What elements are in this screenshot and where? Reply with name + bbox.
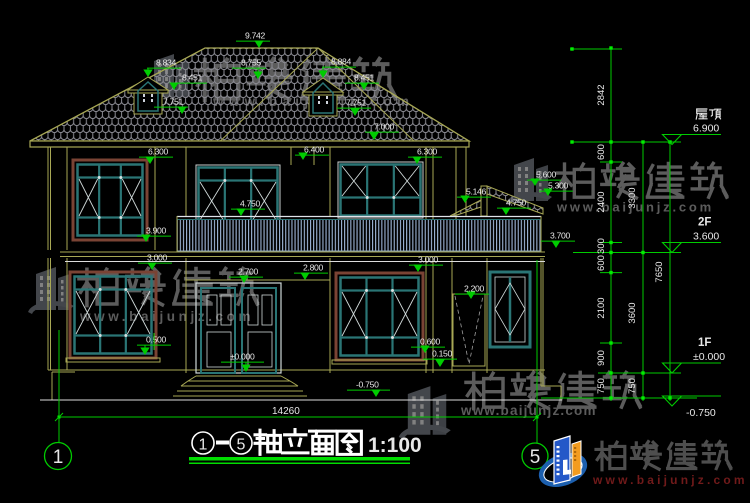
svg-text:www.baijunjz.com: www.baijunjz.com bbox=[592, 473, 748, 487]
svg-text:1F: 1F bbox=[698, 337, 711, 349]
svg-text:7650: 7650 bbox=[654, 261, 665, 282]
svg-text:5.600: 5.600 bbox=[536, 170, 557, 180]
svg-text:7.000: 7.000 bbox=[374, 122, 395, 132]
svg-text:0.150: 0.150 bbox=[432, 349, 453, 359]
svg-text:8.884: 8.884 bbox=[331, 57, 352, 67]
svg-text:7.751: 7.751 bbox=[346, 98, 367, 108]
svg-text:750: 750 bbox=[596, 378, 607, 394]
svg-text:3.000: 3.000 bbox=[418, 255, 439, 265]
svg-text:2.800: 2.800 bbox=[303, 263, 324, 273]
svg-text:5: 5 bbox=[530, 447, 541, 468]
svg-text:2842: 2842 bbox=[596, 84, 607, 105]
svg-text:0.600: 0.600 bbox=[420, 337, 441, 347]
svg-text:8.451: 8.451 bbox=[354, 73, 375, 83]
svg-text:7.751: 7.751 bbox=[163, 97, 184, 107]
svg-text:5: 5 bbox=[237, 437, 246, 454]
svg-text:±0.000: ±0.000 bbox=[693, 351, 725, 363]
svg-text:±0.000: ±0.000 bbox=[230, 352, 255, 362]
svg-text:4.750: 4.750 bbox=[506, 198, 527, 208]
svg-text:6.300: 6.300 bbox=[148, 147, 169, 157]
svg-text:0.500: 0.500 bbox=[146, 335, 167, 345]
svg-text:-0.750: -0.750 bbox=[356, 380, 379, 390]
svg-text:750: 750 bbox=[627, 378, 638, 394]
svg-text:5.146: 5.146 bbox=[466, 187, 487, 197]
svg-text:2F: 2F bbox=[698, 217, 711, 229]
svg-text:3600: 3600 bbox=[627, 302, 638, 323]
svg-text:300: 300 bbox=[596, 238, 607, 254]
svg-text:6.900: 6.900 bbox=[693, 123, 719, 135]
svg-text:14260: 14260 bbox=[272, 406, 300, 417]
svg-text:3.000: 3.000 bbox=[147, 253, 168, 263]
svg-text:600: 600 bbox=[596, 255, 607, 271]
svg-text:www.baijunjz.com: www.baijunjz.com bbox=[79, 309, 254, 324]
svg-text:-0.750: -0.750 bbox=[686, 407, 716, 419]
svg-text:8.755: 8.755 bbox=[241, 58, 262, 68]
svg-text:2100: 2100 bbox=[596, 297, 607, 318]
svg-text:4.750: 4.750 bbox=[240, 199, 261, 209]
svg-text:1:100: 1:100 bbox=[368, 434, 422, 457]
svg-text:9.742: 9.742 bbox=[245, 31, 266, 41]
svg-text:600: 600 bbox=[596, 144, 607, 160]
svg-text:1: 1 bbox=[53, 447, 64, 468]
svg-text:2400: 2400 bbox=[596, 191, 607, 212]
svg-text:3.600: 3.600 bbox=[693, 231, 719, 243]
svg-text:6.300: 6.300 bbox=[417, 147, 438, 157]
svg-text:3300: 3300 bbox=[627, 187, 638, 208]
svg-text:www.baijunjz.com: www.baijunjz.com bbox=[460, 403, 597, 418]
svg-text:3.700: 3.700 bbox=[550, 231, 571, 241]
svg-text:2.700: 2.700 bbox=[238, 267, 259, 277]
svg-text:8.834: 8.834 bbox=[156, 58, 177, 68]
svg-text:3.900: 3.900 bbox=[146, 226, 167, 236]
svg-text:8.451: 8.451 bbox=[182, 73, 203, 83]
svg-text:1: 1 bbox=[199, 437, 208, 454]
svg-text:900: 900 bbox=[596, 350, 607, 366]
